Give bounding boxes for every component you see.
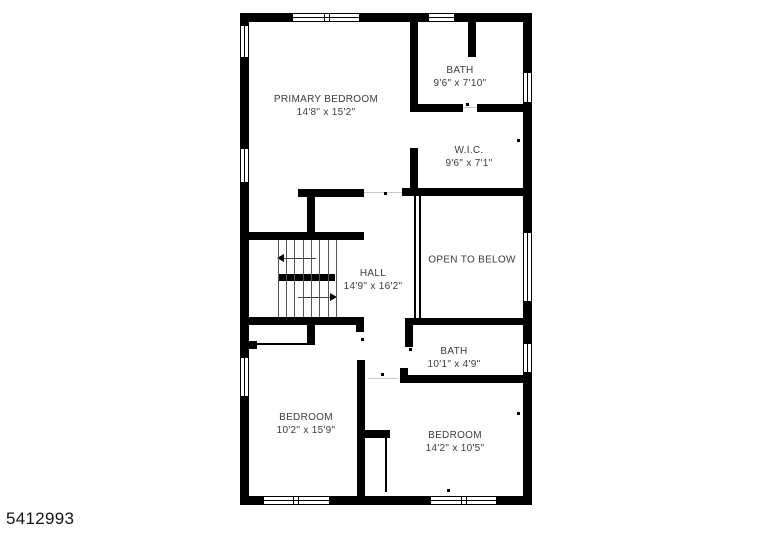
wall-segment bbox=[240, 496, 263, 505]
window bbox=[263, 496, 330, 505]
wall-segment bbox=[240, 58, 249, 148]
room-label-wic: W.I.C. 9'6" x 7'1" bbox=[445, 144, 492, 170]
door-marker bbox=[447, 489, 450, 492]
window bbox=[523, 343, 532, 373]
window bbox=[240, 25, 249, 58]
door-marker bbox=[517, 412, 520, 415]
room-dims: 14'8" x 15'2" bbox=[274, 106, 378, 119]
room-dims: 14'9" x 16'2" bbox=[344, 280, 403, 293]
door-marker bbox=[466, 103, 469, 106]
window-mullion bbox=[324, 14, 325, 21]
wall-segment bbox=[360, 13, 428, 22]
wall-segment bbox=[477, 104, 523, 112]
room-label-bath-lower: BATH 10'1" x 4'9" bbox=[428, 345, 481, 371]
room-name: PRIMARY BEDROOM bbox=[274, 93, 378, 106]
wall-segment bbox=[523, 103, 532, 232]
room-label-bedroom-left: BEDROOM 10'2" x 15'9" bbox=[277, 411, 336, 437]
room-dims: 9'6" x 7'1" bbox=[445, 157, 492, 170]
wall-segment bbox=[240, 13, 249, 25]
room-label-bedroom-right: BEDROOM 14'2" x 10'5" bbox=[426, 429, 485, 455]
wall-segment bbox=[400, 368, 408, 375]
door-marker bbox=[517, 139, 520, 142]
wall-segment bbox=[410, 104, 463, 112]
window-mullion bbox=[466, 497, 467, 504]
room-label-hall: HALL 14'9" x 16'2" bbox=[344, 267, 403, 293]
room-name: BEDROOM bbox=[426, 429, 485, 442]
wall-segment bbox=[523, 13, 532, 72]
window bbox=[240, 357, 249, 397]
room-dims: 10'1" x 4'9" bbox=[428, 358, 481, 371]
room-label-bath-upper: BATH 9'6" x 7'10" bbox=[434, 64, 487, 90]
door-marker bbox=[246, 313, 249, 316]
thin-line bbox=[256, 343, 307, 345]
stair-tread-line bbox=[303, 240, 304, 317]
wall-segment bbox=[402, 188, 523, 196]
thin-line bbox=[414, 196, 416, 318]
window-mullion bbox=[461, 497, 462, 504]
stair-tread-line bbox=[319, 240, 320, 317]
thin-line bbox=[364, 192, 402, 193]
stair-tread-line bbox=[278, 240, 279, 317]
wall-segment bbox=[523, 373, 532, 505]
door-marker bbox=[413, 78, 416, 81]
wall-segment bbox=[400, 375, 523, 383]
thin-line bbox=[419, 196, 421, 318]
wall-segment bbox=[405, 318, 523, 325]
door-marker bbox=[409, 348, 412, 351]
room-label-open-to-below: OPEN TO BELOW bbox=[428, 254, 515, 267]
room-label-primary-bedroom: PRIMARY BEDROOM 14'8" x 15'2" bbox=[274, 93, 378, 119]
listing-id: 5412993 bbox=[6, 509, 74, 529]
stair-tread-line bbox=[286, 240, 287, 317]
stair-tread-line bbox=[311, 240, 312, 317]
wall-segment bbox=[468, 22, 476, 57]
room-name: BATH bbox=[434, 64, 487, 77]
wall-segment bbox=[330, 496, 430, 505]
stair-tread-line bbox=[336, 240, 337, 317]
window-mullion bbox=[329, 14, 330, 21]
thin-line bbox=[385, 438, 387, 492]
wall-segment bbox=[307, 325, 315, 345]
wall-segment bbox=[365, 430, 390, 438]
wall-segment bbox=[249, 232, 364, 240]
room-name: HALL bbox=[344, 267, 403, 280]
wall-segment bbox=[410, 22, 418, 112]
stair-tread-line bbox=[328, 240, 329, 317]
window-mullion bbox=[298, 497, 299, 504]
thin-line bbox=[368, 378, 398, 379]
door-marker bbox=[361, 338, 364, 341]
wall-segment bbox=[356, 325, 364, 332]
room-name: BEDROOM bbox=[277, 411, 336, 424]
room-name: BATH bbox=[428, 345, 481, 358]
wall-segment bbox=[405, 318, 413, 347]
wall-segment bbox=[523, 302, 532, 343]
wall-segment bbox=[357, 360, 365, 496]
window bbox=[523, 232, 532, 302]
window bbox=[430, 496, 497, 505]
room-name: OPEN TO BELOW bbox=[428, 254, 515, 267]
stair-tread-line bbox=[294, 240, 295, 317]
thin-line bbox=[463, 107, 477, 108]
room-dims: 10'2" x 15'9" bbox=[277, 424, 336, 437]
window bbox=[523, 72, 532, 103]
wall-segment bbox=[455, 13, 532, 22]
window bbox=[240, 148, 249, 183]
wall-segment bbox=[240, 183, 249, 357]
room-dims: 9'6" x 7'10" bbox=[434, 77, 487, 90]
floor-plan: PRIMARY BEDROOM 14'8" x 15'2" BATH 9'6" … bbox=[0, 0, 768, 536]
room-dims: 14'2" x 10'5" bbox=[426, 442, 485, 455]
door-marker bbox=[381, 373, 384, 376]
window bbox=[428, 13, 455, 22]
door-marker bbox=[384, 192, 387, 195]
window bbox=[292, 13, 360, 22]
window-mullion bbox=[293, 497, 294, 504]
wall-segment bbox=[240, 397, 249, 505]
wall-segment bbox=[249, 317, 364, 325]
room-name: W.I.C. bbox=[445, 144, 492, 157]
